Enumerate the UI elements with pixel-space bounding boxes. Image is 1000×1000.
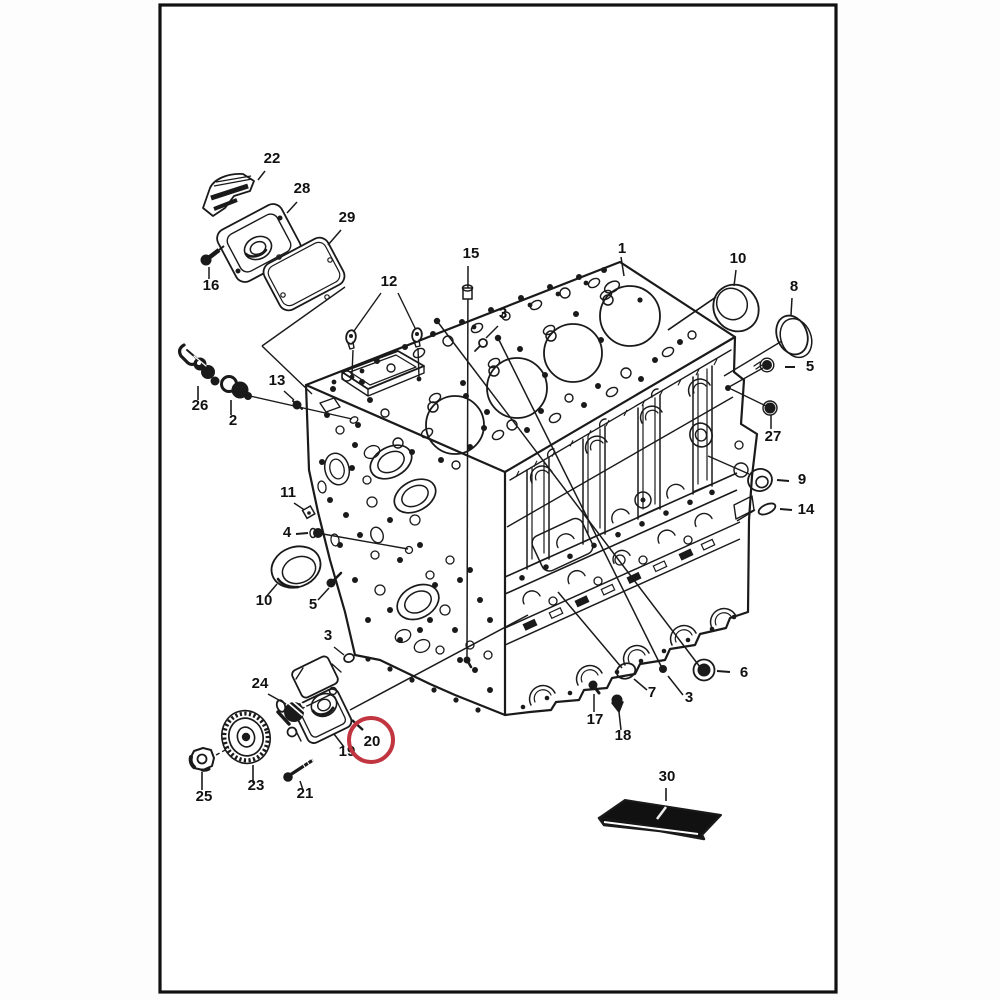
svg-text:29: 29 [339, 209, 356, 226]
svg-text:14: 14 [798, 501, 815, 518]
svg-text:1: 1 [618, 240, 626, 257]
svg-text:30: 30 [659, 768, 676, 785]
svg-text:22: 22 [264, 150, 281, 167]
svg-text:15: 15 [463, 245, 480, 262]
svg-text:18: 18 [615, 727, 632, 744]
svg-text:4: 4 [283, 524, 292, 541]
svg-text:13: 13 [269, 372, 286, 389]
svg-text:26: 26 [192, 397, 209, 414]
svg-text:28: 28 [294, 180, 311, 197]
svg-text:21: 21 [297, 785, 314, 802]
svg-text:10: 10 [730, 250, 747, 267]
svg-text:2: 2 [229, 412, 237, 429]
svg-text:5: 5 [806, 358, 814, 375]
svg-text:3: 3 [499, 305, 507, 322]
svg-text:3: 3 [324, 627, 332, 644]
svg-text:17: 17 [587, 711, 604, 728]
svg-text:10: 10 [256, 592, 273, 609]
svg-text:12: 12 [381, 273, 398, 290]
svg-text:16: 16 [203, 277, 220, 294]
svg-text:11: 11 [280, 484, 296, 501]
svg-text:23: 23 [248, 777, 265, 794]
svg-text:9: 9 [798, 471, 806, 488]
svg-text:6: 6 [740, 664, 748, 681]
svg-text:7: 7 [648, 684, 656, 701]
svg-text:27: 27 [765, 428, 782, 445]
svg-text:5: 5 [309, 596, 317, 613]
svg-text:25: 25 [196, 788, 213, 805]
svg-text:3: 3 [685, 689, 693, 706]
svg-text:20: 20 [364, 733, 381, 750]
svg-text:8: 8 [790, 278, 798, 295]
svg-text:24: 24 [252, 675, 269, 692]
